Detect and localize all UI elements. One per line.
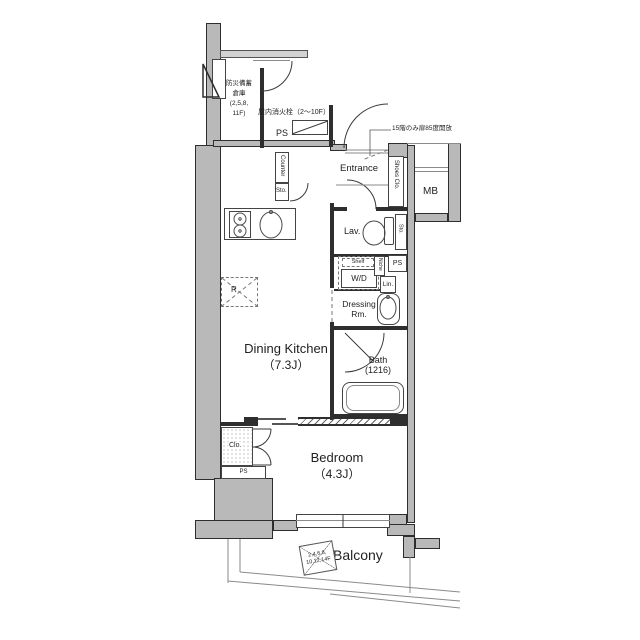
room-label-balcony: Balcony [333, 547, 383, 563]
bedroom-window-centerline [296, 520, 390, 521]
bedroom-window [296, 514, 390, 528]
room-size-bedroom: （4.3J） [277, 468, 397, 482]
closet-door-upper-arc [253, 429, 271, 447]
mb-door-line1 [415, 167, 448, 168]
fixture-label-linen: Lin. [380, 281, 396, 288]
note-indoor-hydrant: 屋内消火栓（2～10F） [258, 109, 330, 117]
room-label-entrance: Entrance [340, 164, 378, 175]
floor-plan: Dining Kitchen （7.3J） Bedroom （4.3J） Bal… [0, 0, 640, 640]
wall-balcony-z1 [387, 524, 415, 536]
fixture-label-niche: Niche [376, 258, 382, 271]
wall-unit-top [213, 140, 335, 147]
wall-bottom-step [273, 520, 298, 531]
balcony-partition-box: 2,4,6,8, 10,12,14F [299, 540, 338, 575]
wall-mb-right [448, 143, 461, 222]
bathtub-inner [346, 385, 400, 411]
wall-mb-top-line [407, 143, 461, 144]
partition-bedroom-pillar [244, 417, 258, 426]
fixture-label-refrigerator: R [231, 285, 237, 294]
fire-hydrant-box [292, 120, 328, 135]
partition-bedroom-top-right [390, 417, 407, 426]
shaft-label-ps-wd: PS [388, 260, 407, 268]
wall-right-exterior [407, 145, 415, 523]
partition-dressing-bath [334, 326, 407, 330]
wall-bottom-left-block [214, 478, 273, 522]
partition-storage-right [260, 68, 264, 148]
closet-door-lower-arc [253, 447, 271, 465]
balcony-rail-line2 [228, 581, 460, 601]
wall-mb-bottom [415, 213, 448, 222]
wall-top-horizontal [220, 50, 308, 58]
lav-door-arc [347, 180, 376, 209]
note-door-open: 15階のみ扉85度開放 [392, 125, 452, 132]
fixture-label-shelf: Shelf [342, 259, 374, 265]
toilet-tank [384, 217, 394, 245]
washbasin [377, 293, 400, 325]
refrigerator-space [221, 277, 258, 307]
room-label-bath-1: Bath [356, 355, 400, 365]
fixture-label-shoes-closet: Shoes Clo. [392, 160, 399, 189]
room-label-dressing-2: Rm. [338, 310, 380, 320]
note-disaster-storage-2: 倉庫 [220, 90, 258, 97]
room-size-dining-kitchen: （7.3J） [226, 359, 346, 373]
room-label-bath-2: (1216) [356, 365, 400, 375]
note-disaster-storage-1: 防災備蓄 [220, 80, 258, 87]
room-label-mb: MB [423, 186, 438, 198]
entrance-door-open-leaf [362, 150, 388, 160]
wall-bottom-left-base [195, 520, 273, 539]
partition-hall-lav-a [334, 207, 347, 211]
shaft-label-ps-bedroom: PS [221, 469, 266, 476]
note-disaster-storage-3: (2,5,8, [220, 100, 258, 107]
fixture-label-hall-storage: Sto. [276, 188, 287, 195]
fixture-label-counter: Counter [278, 155, 285, 176]
fixture-label-wd: W/D [341, 274, 377, 283]
shaft-label-ps-hydrant: PS [276, 128, 288, 138]
fixture-label-lav-storage: Sto. [397, 224, 403, 234]
toilet-bowl [363, 221, 385, 245]
partition-bedroom-hatched [298, 417, 390, 426]
wall-left-exterior [195, 145, 221, 480]
room-label-dining-kitchen: Dining Kitchen [226, 342, 346, 357]
wall-top-underline [253, 60, 290, 61]
hall-door-arc [290, 183, 308, 201]
room-label-lav: Lav. [344, 226, 360, 236]
storage-door-arc [262, 61, 292, 91]
fixture-label-closet: Clo. [228, 442, 242, 450]
balcony-rail-line3 [330, 594, 460, 608]
partition-dk-right-upper [330, 203, 334, 288]
note-disaster-storage-4: 11F) [220, 110, 258, 117]
stove [229, 211, 251, 238]
wall-balcony-z3 [415, 538, 440, 549]
partition-hall-lav-b [376, 207, 407, 211]
room-label-bedroom: Bedroom [277, 451, 397, 466]
balcony-rail-line1 [240, 572, 460, 592]
entrance-door-arc [344, 104, 388, 148]
mb-door-line2 [415, 171, 448, 172]
wall-balcony-z2 [403, 536, 415, 558]
